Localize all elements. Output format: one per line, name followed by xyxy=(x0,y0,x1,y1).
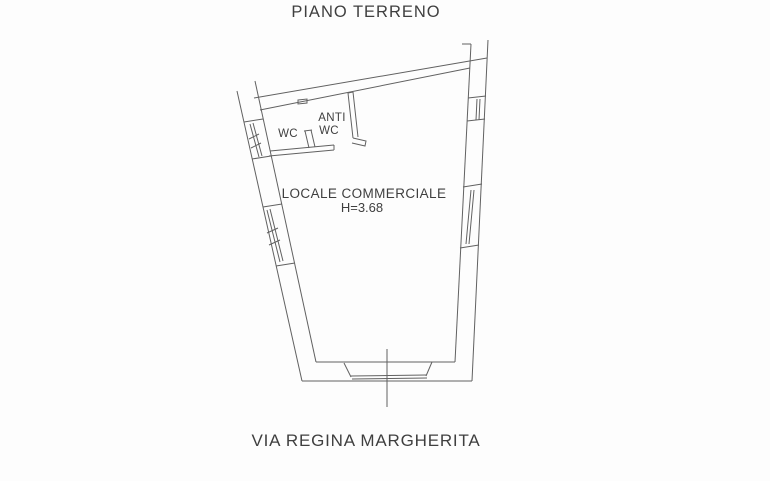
room-height-label: H=3.68 xyxy=(341,200,383,215)
street-name-label: VIA REGINA MARGHERITA xyxy=(251,431,480,450)
anti-wc-door-jamb-foot xyxy=(352,138,366,146)
window-mullion-line xyxy=(476,99,480,120)
floor-plan-drawing: PIANO TERRENO WC ANTI WC LOCALE COMMERCI… xyxy=(0,0,770,481)
anti-wc-east-wall xyxy=(348,92,358,138)
wc-partitions xyxy=(269,92,366,156)
window-glazing-line xyxy=(250,123,262,157)
window-glazing-line xyxy=(466,190,474,244)
entrance-splay-left xyxy=(344,363,351,377)
entrance-splay-right xyxy=(426,362,432,376)
commercial-room-label: LOCALE COMMERCIALE xyxy=(282,186,447,201)
wc-divider-stem xyxy=(304,130,315,148)
anti-wc-room-label-line1: ANTI xyxy=(318,112,345,124)
right-wall-outer-line xyxy=(472,40,488,381)
left-wall-inner-line xyxy=(255,81,316,362)
floor-plan-page: PIANO TERRENO WC ANTI WC LOCALE COMMERCI… xyxy=(0,0,770,481)
entrance-opening xyxy=(344,349,432,407)
top-wall-outer-line xyxy=(254,58,487,98)
top-wall-inner-line xyxy=(260,68,470,110)
right-wall-inner-line xyxy=(455,44,471,362)
plan-title: PIANO TERRENO xyxy=(291,3,440,21)
anti-wc-room-label-line2: WC xyxy=(319,125,339,137)
window-left-lower xyxy=(263,204,295,266)
wc-south-wall xyxy=(269,145,334,156)
entrance-threshold-line xyxy=(351,375,427,379)
window-right-upper xyxy=(467,96,486,121)
wc-room-label: WC xyxy=(278,128,298,140)
